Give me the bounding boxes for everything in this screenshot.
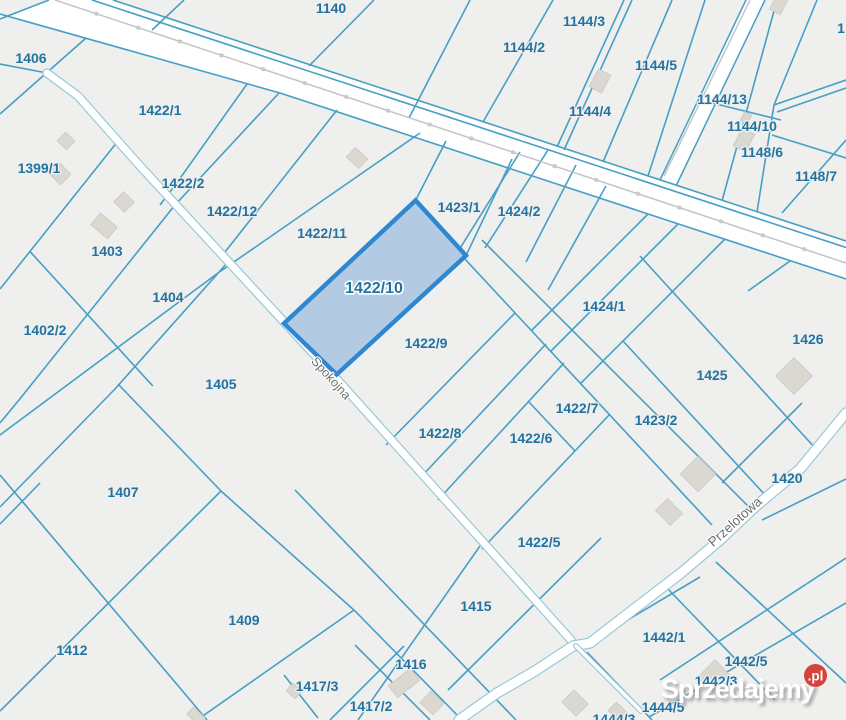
svg-text:.pl: .pl [808, 669, 824, 684]
svg-text:1416: 1416 [395, 656, 426, 672]
svg-text:1422/12: 1422/12 [207, 203, 258, 219]
svg-text:1144/10: 1144/10 [727, 118, 777, 134]
svg-text:1403: 1403 [91, 243, 122, 259]
svg-text:1417/2: 1417/2 [350, 698, 393, 714]
svg-text:1422/6: 1422/6 [510, 430, 553, 446]
svg-text:1415: 1415 [460, 598, 491, 614]
svg-text:1423/1: 1423/1 [438, 199, 481, 215]
svg-text:1140: 1140 [316, 0, 347, 16]
svg-text:1409: 1409 [228, 612, 259, 628]
svg-text:1422/2: 1422/2 [162, 175, 205, 191]
svg-text:1444/3: 1444/3 [593, 711, 636, 720]
svg-text:1405: 1405 [205, 376, 236, 392]
svg-text:1422/9: 1422/9 [405, 335, 448, 351]
svg-text:1144/4: 1144/4 [569, 103, 611, 119]
svg-text:1407: 1407 [107, 484, 138, 500]
svg-text:1422/8: 1422/8 [419, 425, 462, 441]
svg-text:1426: 1426 [792, 331, 823, 347]
svg-text:1423/2: 1423/2 [635, 412, 678, 428]
svg-text:1422/5: 1422/5 [518, 534, 561, 550]
svg-text:1399/1: 1399/1 [18, 160, 61, 176]
svg-text:1144/2: 1144/2 [503, 39, 545, 55]
svg-text:1422/1: 1422/1 [139, 102, 182, 118]
svg-text:1422/10: 1422/10 [345, 280, 403, 297]
svg-text:1424/2: 1424/2 [498, 203, 541, 219]
svg-text:1144/13: 1144/13 [697, 91, 747, 107]
svg-text:1404: 1404 [152, 289, 183, 305]
svg-text:1422/11: 1422/11 [297, 225, 347, 241]
svg-text:1442/5: 1442/5 [725, 653, 768, 669]
svg-text:1425: 1425 [696, 367, 727, 383]
svg-text:1442/1: 1442/1 [643, 629, 686, 645]
svg-text:1406: 1406 [15, 50, 46, 66]
svg-text:1: 1 [837, 20, 845, 36]
svg-text:1417/3: 1417/3 [296, 678, 339, 694]
svg-text:1412: 1412 [56, 642, 87, 658]
svg-text:1148/7: 1148/7 [795, 168, 837, 184]
svg-text:1424/1: 1424/1 [583, 298, 626, 314]
svg-text:1422/7: 1422/7 [556, 400, 599, 416]
svg-text:1402/2: 1402/2 [24, 322, 67, 338]
svg-text:1148/6: 1148/6 [741, 144, 783, 160]
svg-text:1144/3: 1144/3 [563, 13, 605, 29]
svg-text:Sprzedajemy: Sprzedajemy [661, 674, 816, 704]
svg-text:1144/5: 1144/5 [635, 57, 677, 73]
svg-text:1420: 1420 [771, 470, 802, 486]
